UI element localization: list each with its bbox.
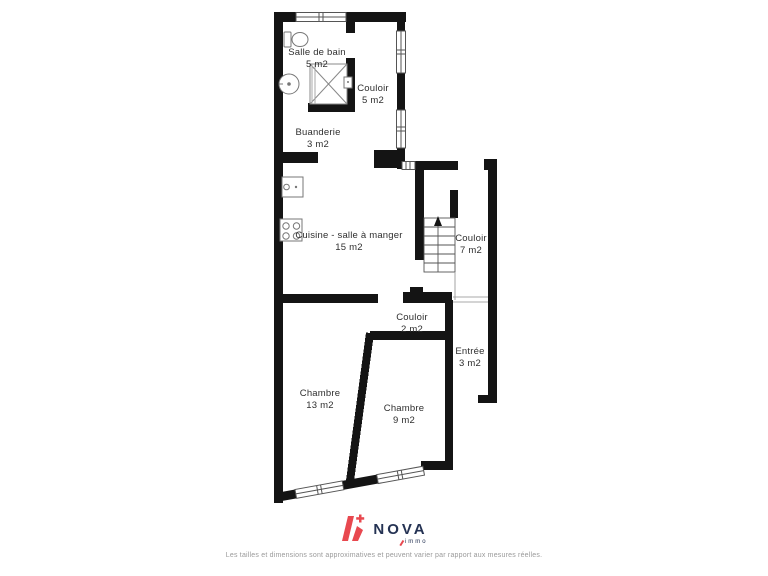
immo-slash-icon [400,540,404,546]
stairs-icon [424,216,455,300]
nova-logo-mark-icon [340,514,366,542]
footer: NOVA immo Les tailles et dimensions sont… [0,514,768,559]
disclaimer-text: Les tailles et dimensions sont approxima… [0,552,768,559]
brand-text: NOVA immo [373,514,427,546]
nova-immo-logo: NOVA immo [340,514,427,546]
floor-plan-page: Salle de bain 5 m2 Couloir 5 m2 Buanderi… [0,0,768,576]
kitchen-sink-icon [282,177,303,197]
window-icon [295,481,344,498]
walls [274,12,497,503]
bathroom-sink-icon [279,74,299,94]
opening-lines [453,297,488,302]
window-icon [402,162,415,170]
window-icon [397,31,406,73]
brand-sub-row: immo [401,539,427,546]
brand-sub: immo [405,539,428,546]
window-icon [377,466,425,483]
shower-icon [310,64,352,104]
window-icon [397,110,406,148]
floor-plan-drawing [0,0,768,576]
brand-name: NOVA [373,522,427,537]
stove-icon [280,219,302,241]
toilet-icon [284,32,308,47]
window-icon [296,13,346,22]
